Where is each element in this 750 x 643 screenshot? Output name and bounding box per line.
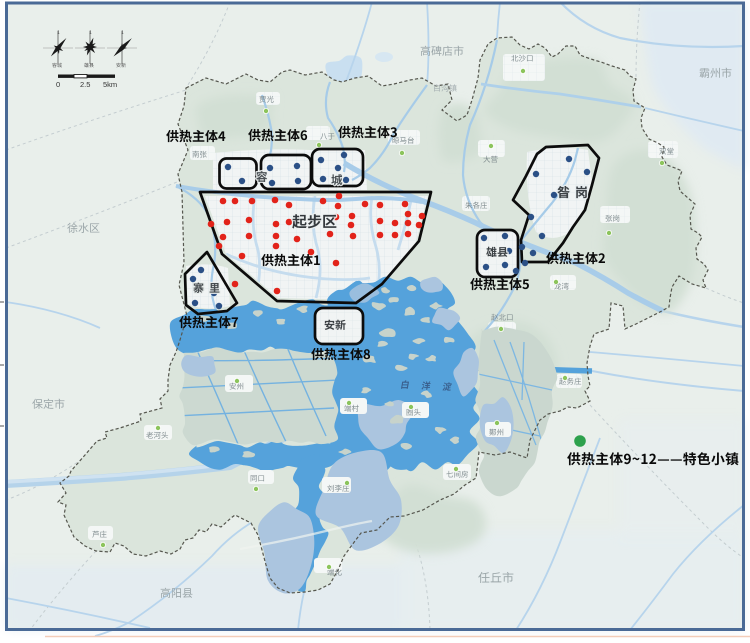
svg-text:0: 0 [56, 80, 60, 89]
svg-text:2.5: 2.5 [80, 80, 90, 89]
svg-text:5km: 5km [103, 80, 117, 89]
